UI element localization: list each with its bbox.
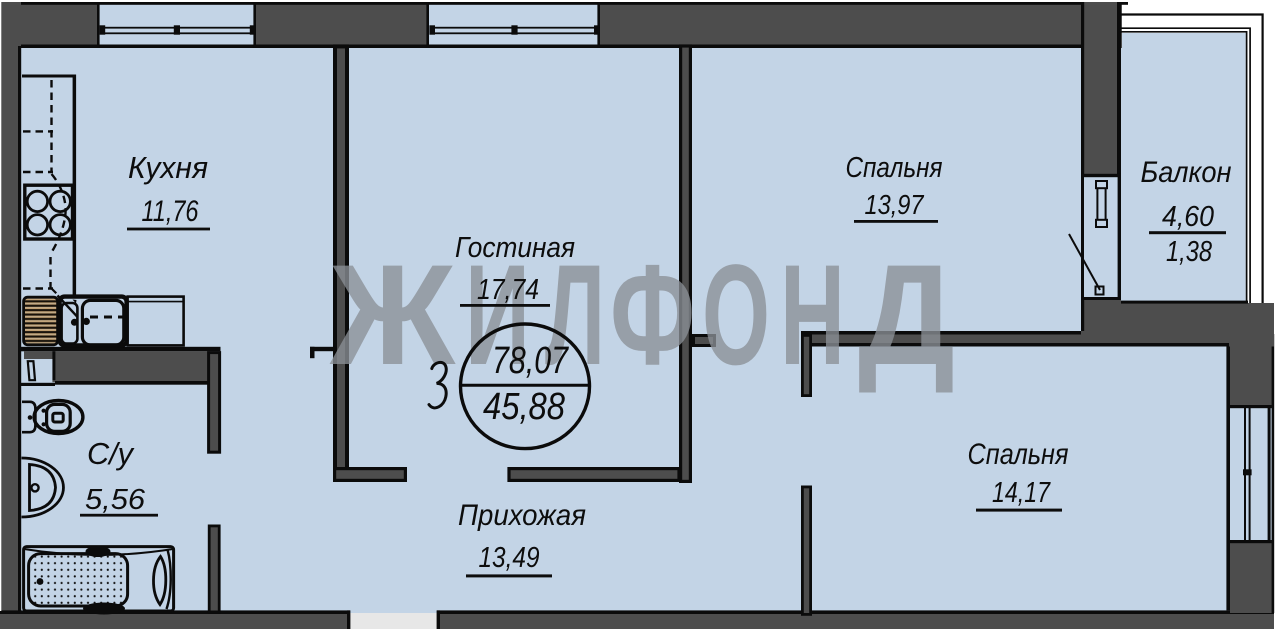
svg-text:Ф: Ф — [610, 236, 695, 395]
svg-text:5,56: 5,56 — [85, 484, 146, 516]
svg-text:14,17: 14,17 — [992, 477, 1051, 509]
svg-text:Д: Д — [858, 236, 955, 395]
svg-text:Гостиная: Гостиная — [455, 232, 575, 264]
svg-text:4,60: 4,60 — [1162, 201, 1214, 233]
svg-text:1,38: 1,38 — [1166, 236, 1212, 268]
svg-text:13,97: 13,97 — [865, 189, 925, 220]
svg-text:Спальня: Спальня — [846, 152, 943, 184]
svg-text:78,07: 78,07 — [492, 340, 569, 382]
svg-text:13,49: 13,49 — [479, 542, 540, 574]
svg-text:45,88: 45,88 — [483, 386, 565, 428]
svg-text:17,74: 17,74 — [477, 274, 539, 306]
svg-text:Кухня: Кухня — [128, 150, 208, 185]
svg-text:О: О — [702, 236, 770, 395]
svg-text:С/у: С/у — [87, 436, 135, 471]
svg-text:Прихожая: Прихожая — [458, 499, 586, 532]
svg-text:Ж: Ж — [329, 236, 456, 395]
svg-text:Спальня: Спальня — [968, 438, 1069, 471]
svg-text:Н: Н — [780, 236, 845, 395]
svg-text:Балкон: Балкон — [1141, 156, 1232, 189]
svg-text:11,76: 11,76 — [142, 195, 199, 228]
